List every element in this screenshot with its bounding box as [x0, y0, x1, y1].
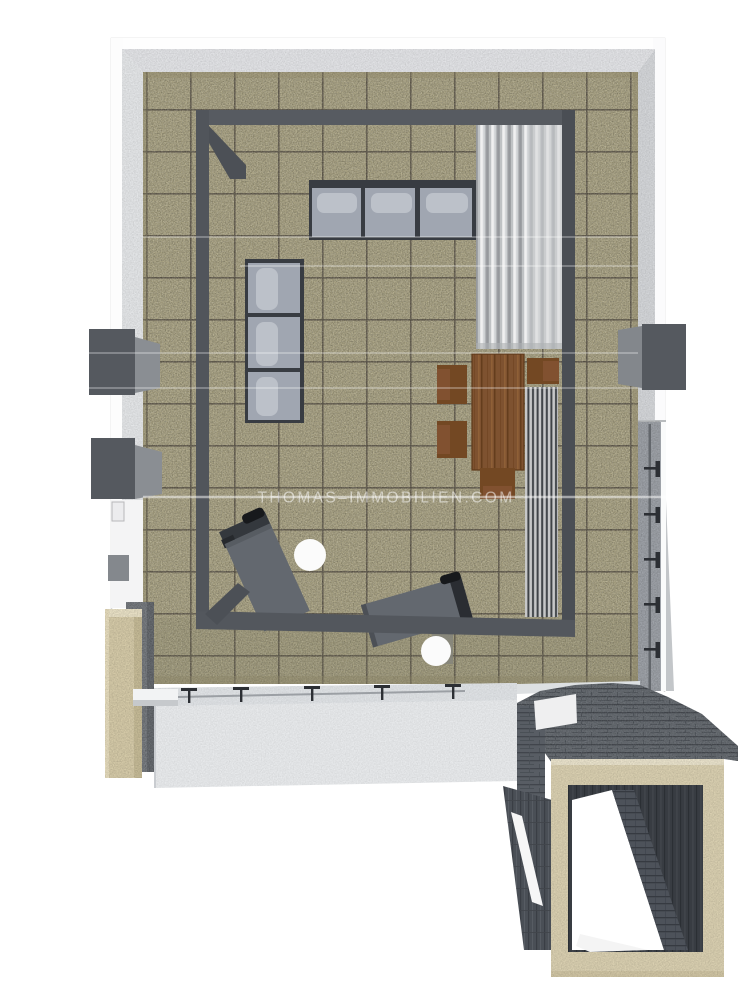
- svg-text:THOMAS–IMMOBILIEN.COM: THOMAS–IMMOBILIEN.COM: [257, 490, 514, 507]
